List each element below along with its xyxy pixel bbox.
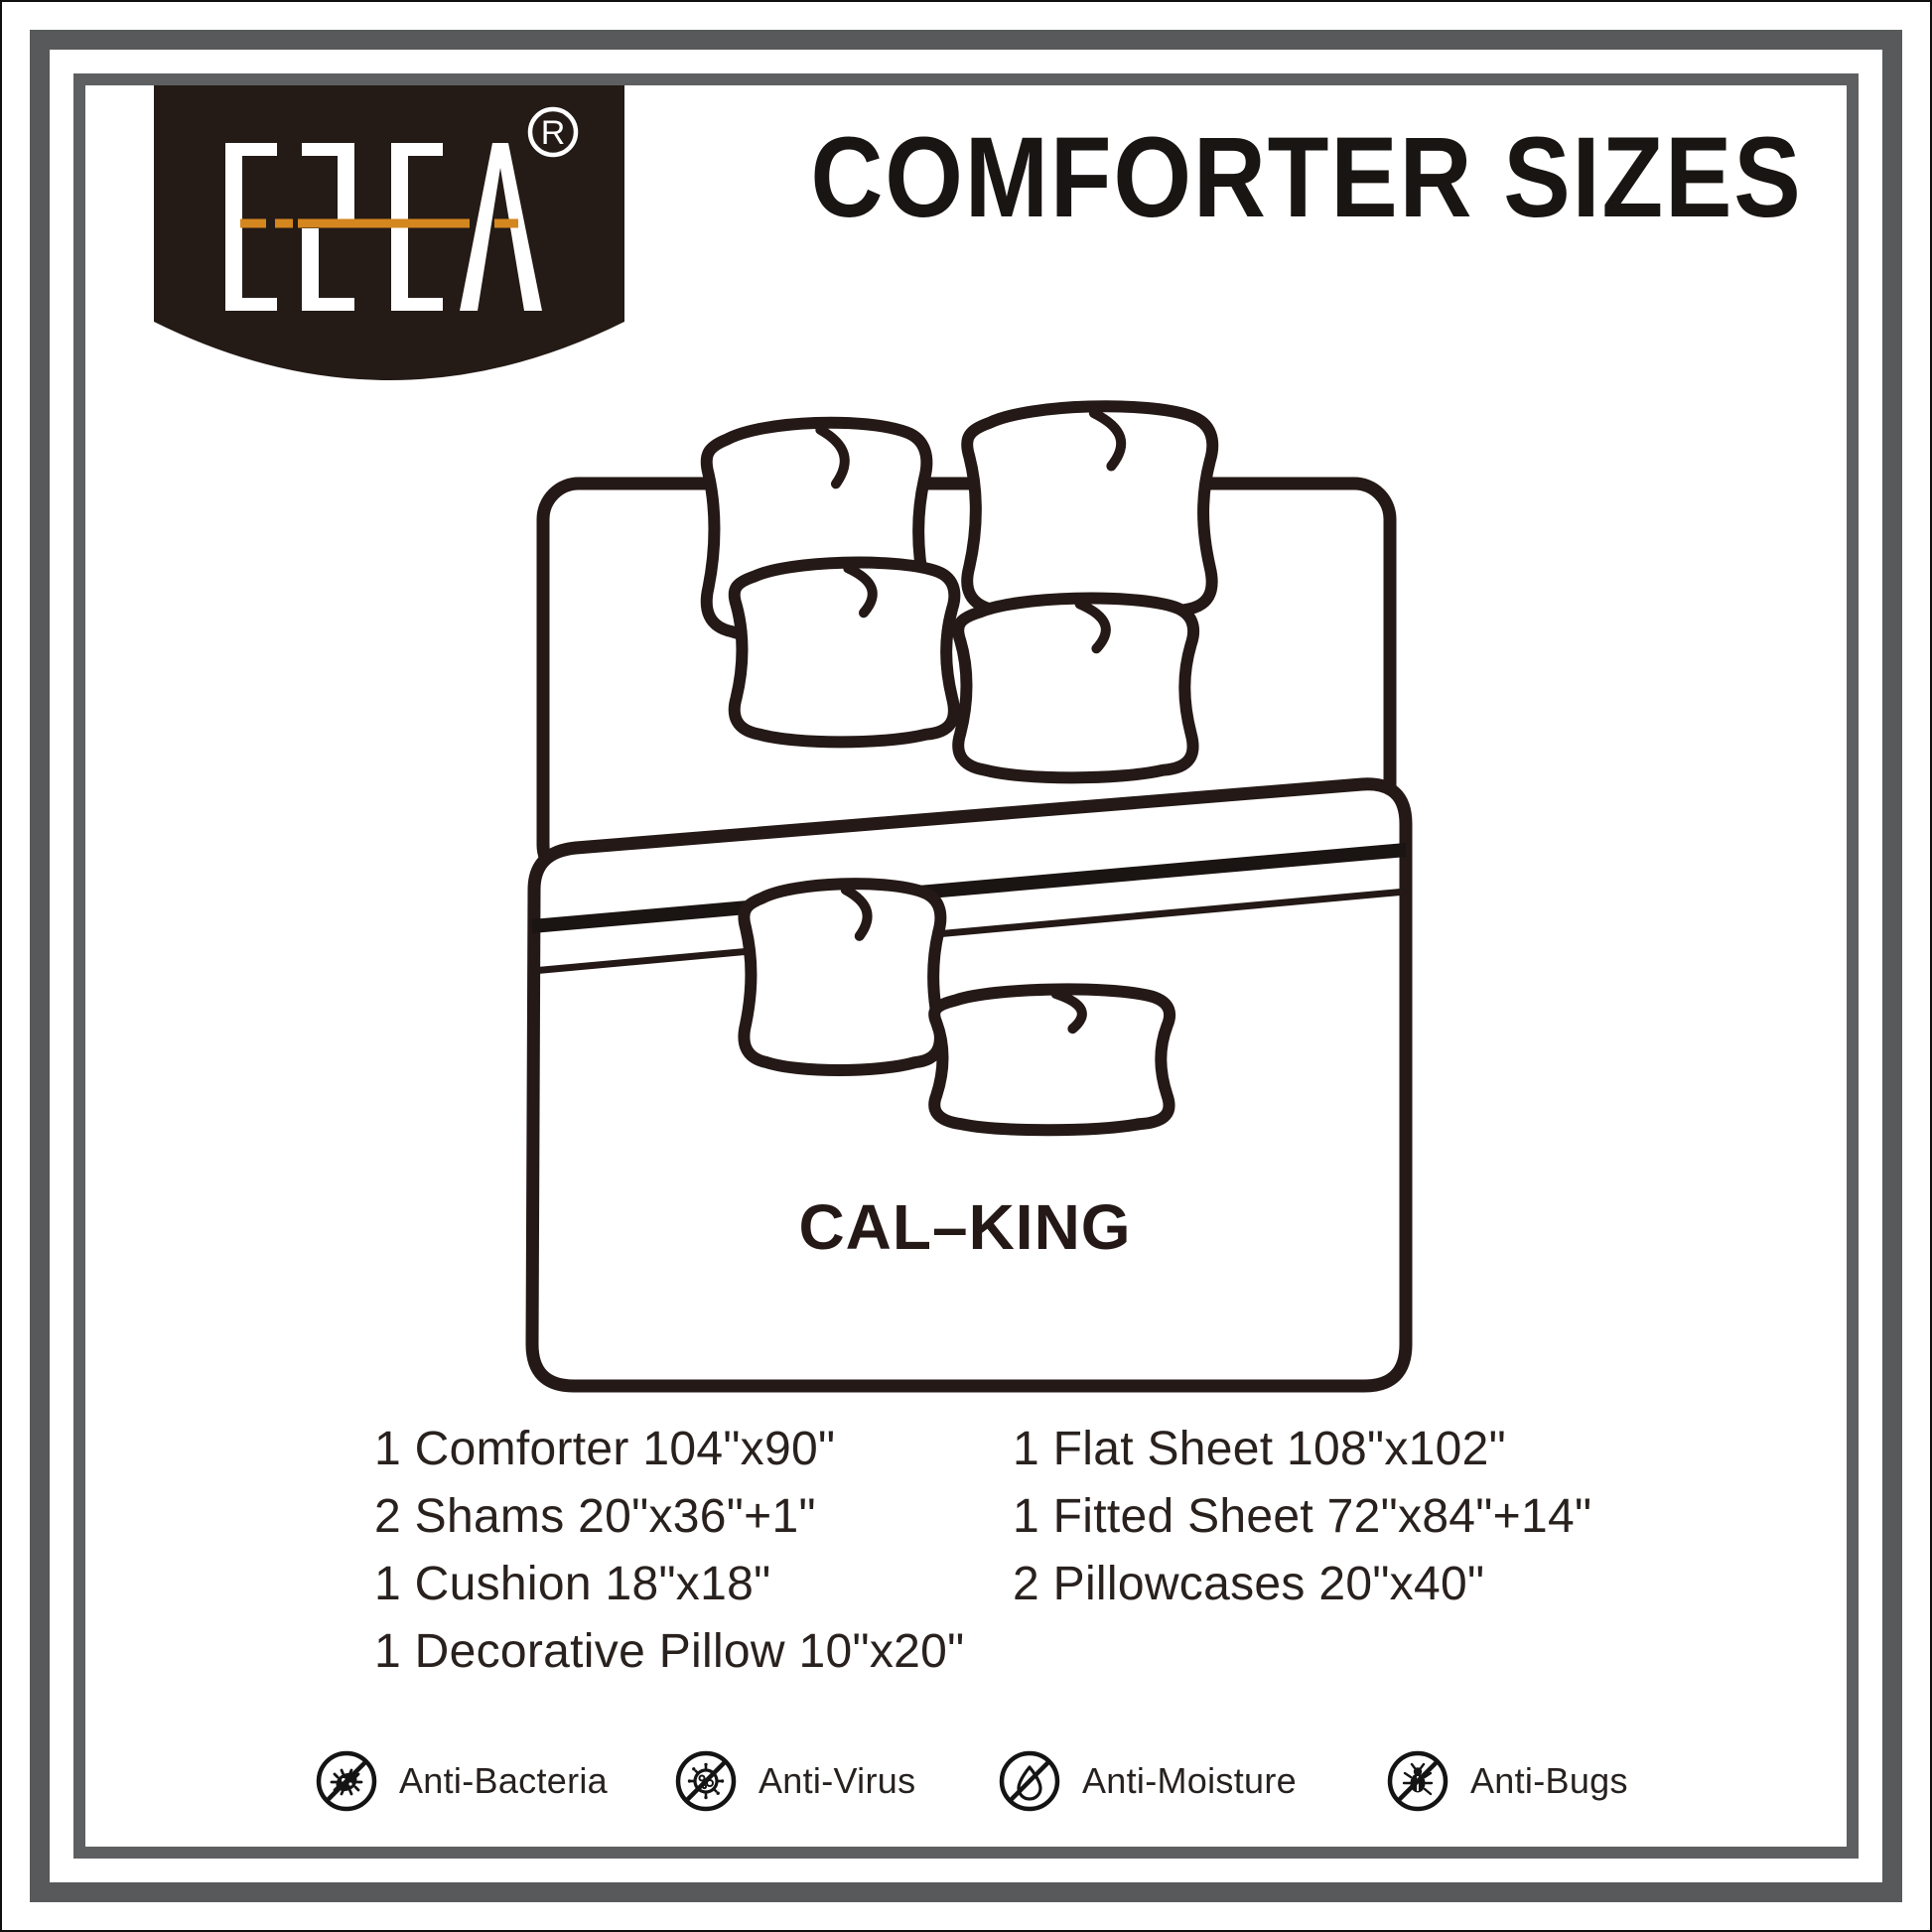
feature-anti-bugs: Anti-Bugs [1387, 1749, 1628, 1813]
spec-line: 1 Cushion 18"x18" [374, 1551, 964, 1618]
decorative-pillow [934, 989, 1170, 1130]
feature-anti-moisture: Anti-Moisture [999, 1749, 1297, 1813]
feature-label: Anti-Virus [759, 1760, 915, 1802]
sham-right [958, 599, 1193, 778]
feature-label: Anti-Moisture [1082, 1760, 1297, 1802]
infographic-page: R ESCA COMFORTER SIZES CAL–KING 1 Comfor… [0, 0, 1932, 1932]
spec-line: 1 Comforter 104"x90" [374, 1416, 964, 1483]
brand-name-text: ESCA [2, 2, 3, 3]
feature-anti-bacteria: Anti-Bacteria [316, 1749, 608, 1813]
spec-column-left: 1 Comforter 104"x90" 2 Shams 20"x36"+1" … [374, 1416, 964, 1686]
size-label: CAL–KING [798, 1191, 1131, 1263]
feature-anti-virus: Anti-Virus [675, 1749, 915, 1813]
spec-line: 1 Fitted Sheet 72"x84"+14" [1013, 1483, 1591, 1551]
anti-virus-icon [675, 1750, 737, 1812]
spec-column-right: 1 Flat Sheet 108"x102" 1 Fitted Sheet 72… [1013, 1416, 1591, 1618]
page-title: COMFORTER SIZES [810, 121, 1675, 235]
anti-moisture-icon [999, 1750, 1060, 1812]
spec-line: 1 Flat Sheet 108"x102" [1013, 1416, 1591, 1483]
cushion-pillow [744, 884, 940, 1070]
pillow-large-right [967, 406, 1212, 619]
bed-diagram: CAL–KING [429, 330, 1511, 1402]
spec-line: 1 Decorative Pillow 10"x20" [374, 1618, 964, 1686]
spec-line: 2 Shams 20"x36"+1" [374, 1483, 964, 1551]
spec-line: 2 Pillowcases 20"x40" [1013, 1551, 1591, 1618]
anti-bacteria-icon [316, 1750, 377, 1812]
sham-left [735, 563, 955, 743]
anti-bugs-icon [1387, 1750, 1449, 1812]
feature-label: Anti-Bugs [1470, 1760, 1628, 1802]
feature-label: Anti-Bacteria [399, 1760, 608, 1802]
svg-text:R: R [541, 114, 566, 152]
